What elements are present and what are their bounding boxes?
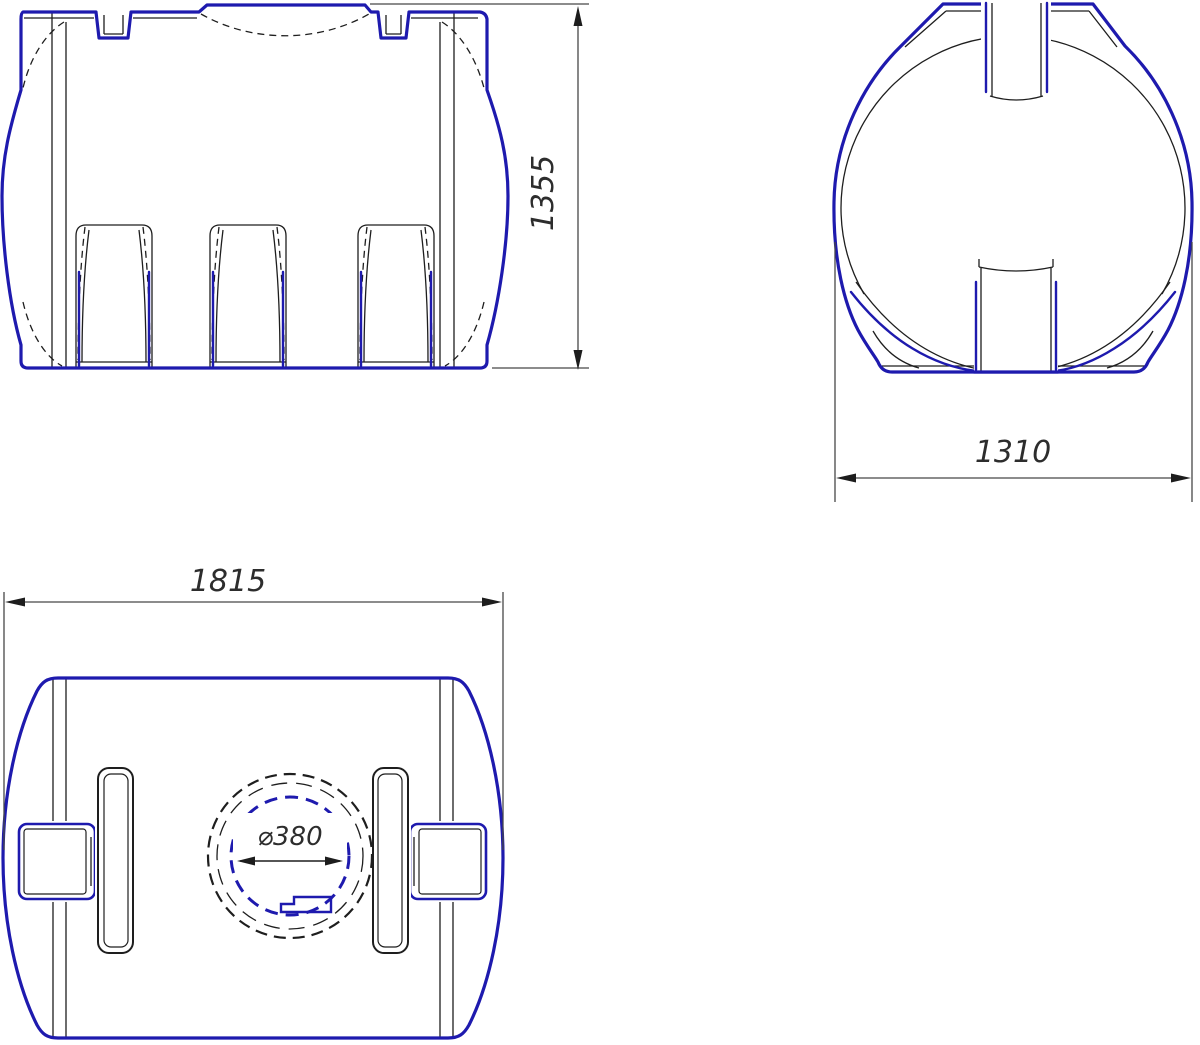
top-manhole-tab (281, 897, 331, 912)
top-length-dimension-label: 1815 (190, 564, 266, 599)
front-hidden-corner-tl (23, 22, 64, 88)
technical-drawing-canvas: 1355 1310 (0, 0, 1200, 1045)
front-hidden-corner-tr (442, 22, 484, 88)
top-right-slot-mask (370, 765, 411, 956)
front-height-dimension-label: 1355 (526, 155, 561, 231)
front-notch-right (386, 15, 401, 34)
front-rib-2 (210, 225, 286, 368)
front-notch-left (104, 15, 123, 34)
front-hidden-corner-br (445, 302, 484, 366)
front-shell-lines (52, 13, 454, 367)
end-bottom-channel-mask (974, 258, 1058, 371)
end-width-dimension-label: 1310 (975, 435, 1051, 470)
front-hidden-top-recess (201, 14, 369, 36)
top-manhole-middle-circle (217, 783, 363, 929)
front-view: 1355 (2, 4, 589, 370)
top-left-slot-mask (95, 765, 136, 956)
front-hidden-corner-bl (23, 302, 62, 366)
top-manhole-dimension-label: ⌀380 (257, 822, 322, 852)
front-rib-1 (76, 225, 152, 368)
top-manhole-outer-circle (208, 774, 372, 938)
top-view: ⌀380 1815 (3, 564, 503, 1038)
drawing-sheet: 1355 1310 (0, 0, 1200, 1045)
end-view: 1310 (834, 1, 1192, 502)
front-rib-3 (358, 225, 434, 368)
